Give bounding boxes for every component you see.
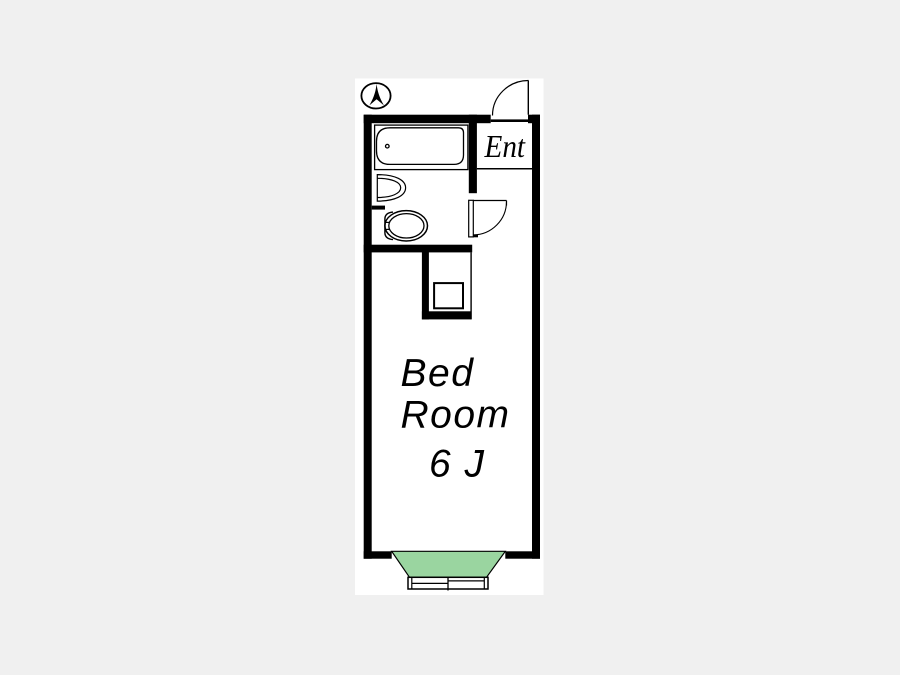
- svg-text:Ent: Ent: [484, 128, 526, 164]
- svg-text:6 J: 6 J: [429, 443, 486, 486]
- svg-text:Bed: Bed: [401, 352, 475, 395]
- svg-text:Room: Room: [401, 394, 511, 437]
